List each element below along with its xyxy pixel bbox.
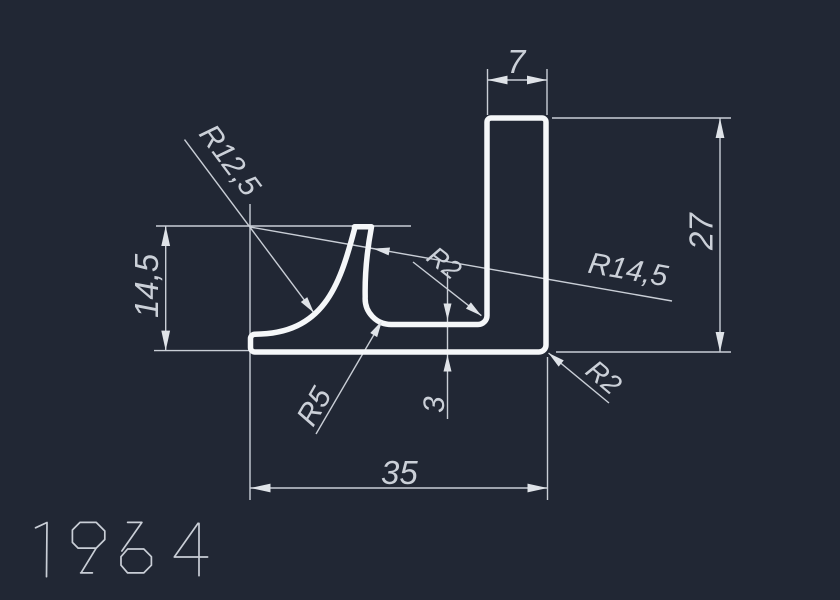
svg-text:3: 3	[418, 396, 451, 413]
svg-text:35: 35	[381, 454, 418, 491]
svg-text:14,5: 14,5	[128, 253, 165, 318]
svg-text:7: 7	[507, 43, 527, 80]
svg-text:27: 27	[683, 212, 720, 251]
